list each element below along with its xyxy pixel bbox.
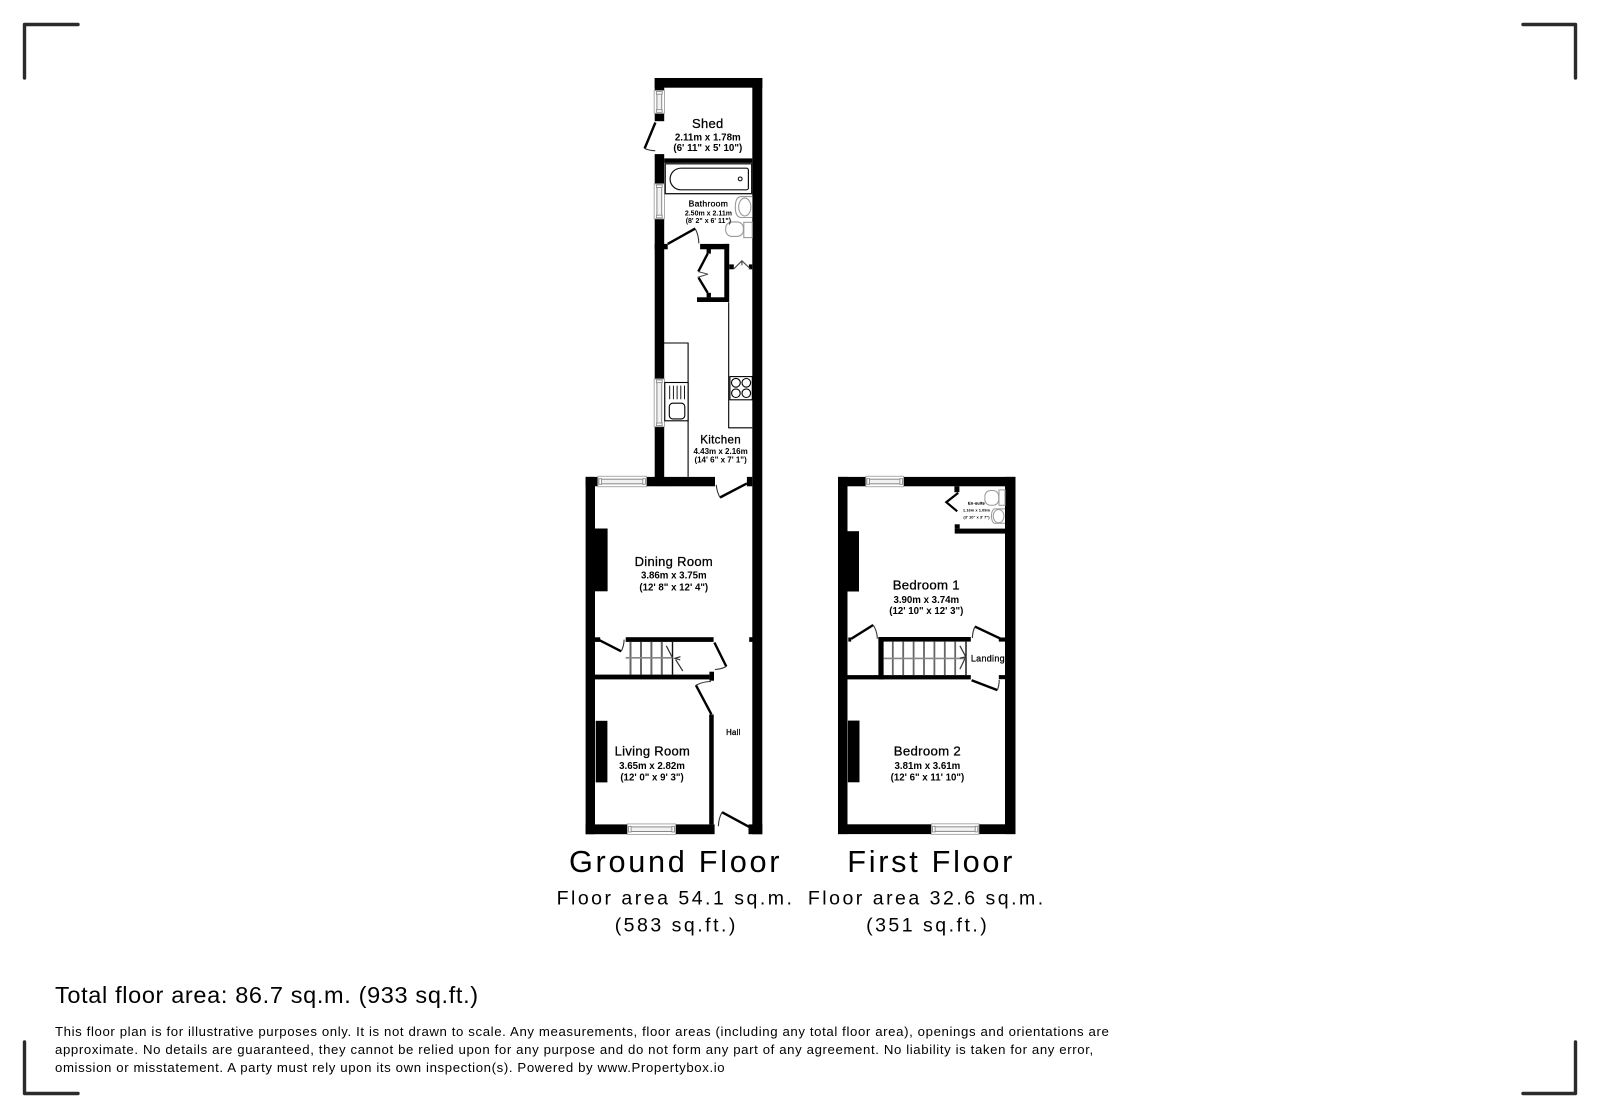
svg-text:(12' 8" x 12' 4"): (12' 8" x 12' 4") xyxy=(639,582,708,593)
svg-text:Living Room: Living Room xyxy=(615,744,691,759)
svg-text:(12' 10" x 12' 3"): (12' 10" x 12' 3") xyxy=(889,606,963,617)
svg-text:3.81m x 3.61m: 3.81m x 3.61m xyxy=(895,761,961,772)
svg-text:2.50m x 2.11m: 2.50m x 2.11m xyxy=(685,211,732,218)
svg-text:En-suite: En-suite xyxy=(968,500,986,505)
svg-text:1.16m x 1.09m: 1.16m x 1.09m xyxy=(963,508,991,513)
svg-text:(6' 11" x 5' 10"): (6' 11" x 5' 10") xyxy=(673,143,742,154)
svg-text:Bedroom 2: Bedroom 2 xyxy=(894,744,961,759)
svg-text:Total floor area: 86.7 sq.m. (: Total floor area: 86.7 sq.m. (933 sq.ft.… xyxy=(55,982,479,1008)
svg-text:Kitchen: Kitchen xyxy=(700,434,741,447)
svg-text:Dining Room: Dining Room xyxy=(635,554,713,569)
svg-text:(12' 6" x 11' 10"): (12' 6" x 11' 10") xyxy=(891,772,965,783)
svg-text:(583 sq.ft.): (583 sq.ft.) xyxy=(615,914,738,936)
svg-text:Bathroom: Bathroom xyxy=(689,199,729,209)
svg-text:Floor area 54.1 sq.m.: Floor area 54.1 sq.m. xyxy=(557,887,795,909)
svg-text:approximate. No details are gu: approximate. No details are guaranteed, … xyxy=(55,1042,1094,1057)
svg-text:3.65m x 2.82m: 3.65m x 2.82m xyxy=(619,761,685,772)
svg-text:Landing: Landing xyxy=(971,654,1005,664)
svg-text:First Floor: First Floor xyxy=(847,844,1015,879)
svg-text:(3' 10" x 3' 7"): (3' 10" x 3' 7") xyxy=(963,515,990,520)
svg-text:Hall: Hall xyxy=(726,728,741,737)
svg-text:omission or misstatement. A pa: omission or misstatement. A party must r… xyxy=(55,1060,725,1075)
svg-text:Shed: Shed xyxy=(692,116,724,131)
svg-text:3.86m x 3.75m: 3.86m x 3.75m xyxy=(641,571,707,582)
svg-text:3.90m x 3.74m: 3.90m x 3.74m xyxy=(893,595,959,606)
svg-text:Ground Floor: Ground Floor xyxy=(569,844,782,879)
svg-text:This floor plan is for illustr: This floor plan is for illustrative purp… xyxy=(55,1024,1109,1039)
svg-text:(14' 6" x 7' 1"): (14' 6" x 7' 1") xyxy=(694,456,747,465)
svg-text:2.11m x 1.78m: 2.11m x 1.78m xyxy=(675,132,741,143)
svg-text:(351 sq.ft.): (351 sq.ft.) xyxy=(866,914,989,936)
svg-text:(12' 0" x 9' 3"): (12' 0" x 9' 3") xyxy=(620,773,683,784)
svg-text:(8' 2" x 6' 11"): (8' 2" x 6' 11") xyxy=(686,218,731,225)
svg-text:Bedroom 1: Bedroom 1 xyxy=(893,578,960,593)
svg-text:Floor area 32.6 sq.m.: Floor area 32.6 sq.m. xyxy=(808,887,1046,909)
